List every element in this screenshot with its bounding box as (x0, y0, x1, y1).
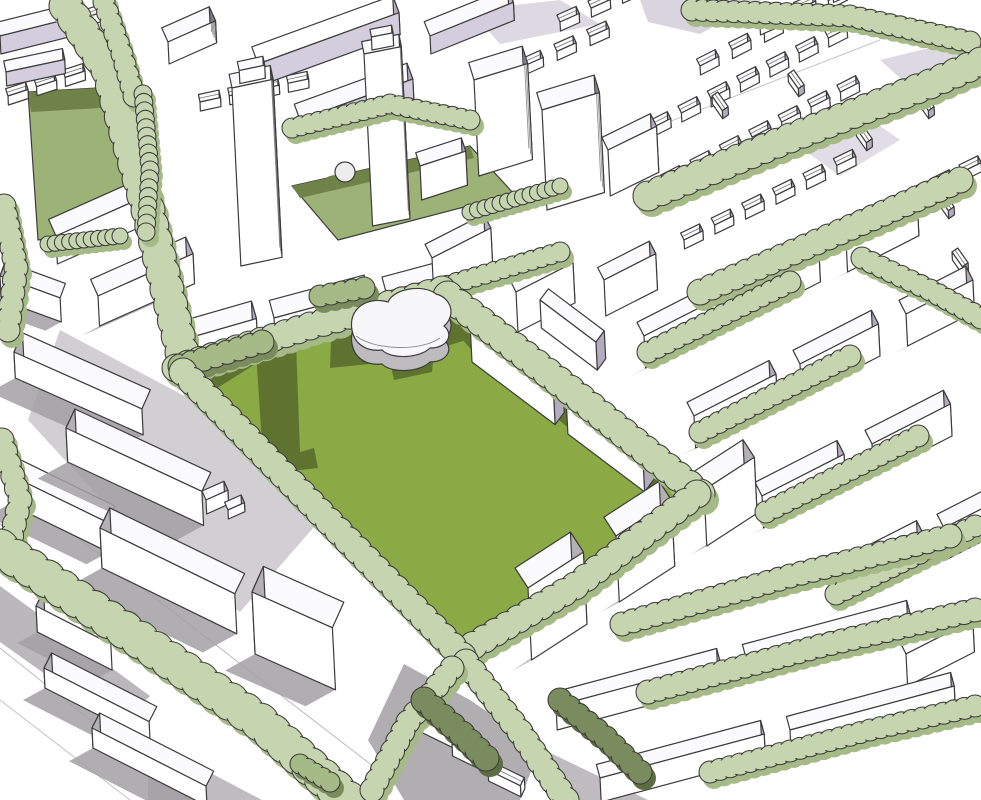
front-face (622, 0, 642, 3)
canopy-fill (781, 273, 799, 291)
canopy-fill (949, 169, 971, 191)
house (63, 64, 86, 87)
canopy-fill (462, 112, 478, 128)
house (678, 97, 701, 122)
house (742, 194, 765, 219)
house (729, 33, 752, 58)
house (711, 209, 734, 234)
canopy-fill (475, 747, 497, 769)
dome-kiosk (335, 162, 355, 182)
canopy (552, 178, 568, 194)
house (766, 52, 789, 77)
tower-crown (237, 56, 265, 83)
front-face (474, 64, 532, 176)
canopy-fill (841, 347, 859, 365)
house (198, 90, 221, 111)
house (772, 179, 795, 204)
canopy-fill (940, 526, 960, 546)
building-slab (598, 241, 658, 316)
masterplan-sketch: Urban masterplan aerial sketch (0, 0, 981, 800)
house (554, 36, 577, 61)
house (588, 0, 611, 17)
house (796, 37, 819, 62)
house (697, 50, 720, 75)
canopy-fill (252, 332, 272, 352)
canopy-fill (909, 427, 927, 445)
house (788, 70, 805, 97)
canopy-fill (355, 279, 373, 297)
house (803, 164, 826, 189)
canopy-fill (322, 774, 338, 790)
canopy-fill (552, 244, 568, 260)
tower-block (229, 66, 282, 266)
building-slab (162, 7, 217, 64)
point-slab (469, 46, 533, 176)
front-face (364, 47, 410, 226)
house (619, 0, 642, 3)
tower-crown (370, 25, 394, 50)
canopy (137, 223, 155, 241)
masterplan-sketch-canvas: Urban masterplan aerial sketch (0, 0, 981, 800)
house (681, 224, 704, 249)
canopy (112, 228, 128, 244)
canopy-fill (630, 762, 650, 782)
canopy-fill (362, 780, 382, 800)
front-face (232, 79, 282, 266)
street-trees (0, 194, 32, 348)
